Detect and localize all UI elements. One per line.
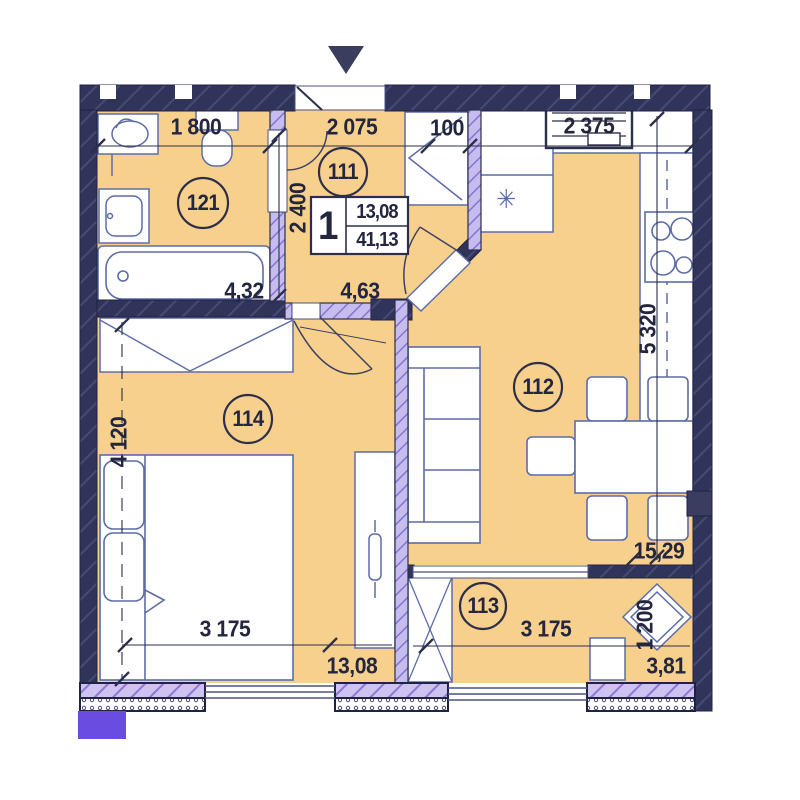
- balcony-glazing: [448, 688, 587, 700]
- chair: [527, 437, 575, 475]
- room-number-hallway: 111: [328, 161, 358, 183]
- chair: [648, 496, 688, 540]
- area-bedroom: 13,08: [327, 655, 378, 678]
- dim-bedroom-height: 4 120: [108, 417, 131, 468]
- dim-kitchen-height: 5 320: [637, 304, 660, 355]
- dim-top-kitchen: 2 375: [564, 115, 615, 138]
- wardrobe-bedroom: [100, 318, 293, 372]
- area-hallway: 4,63: [340, 280, 379, 303]
- chair: [648, 377, 688, 421]
- bedroom-window: [205, 686, 335, 698]
- unit-number: 1: [318, 206, 338, 246]
- unit-total-area: 41,13: [356, 230, 397, 250]
- dim-top-bathroom: 1 800: [171, 116, 222, 139]
- bed: [100, 455, 293, 680]
- stove: [645, 212, 695, 282]
- dim-top-gap: 100: [430, 117, 464, 140]
- chair: [587, 377, 627, 421]
- unit-living-area: 13,08: [356, 202, 397, 222]
- floor-plan-drawing: [0, 0, 800, 800]
- dim-bedroom-width: 3 175: [200, 618, 251, 641]
- balcony-stool: [590, 638, 625, 680]
- entrance-arrow-icon: [328, 46, 364, 74]
- room-number-bathroom: 121: [187, 192, 219, 214]
- sofa: [408, 347, 480, 543]
- wardrobe-balcony: [408, 577, 452, 682]
- dim-top-hallway: 2 075: [327, 116, 378, 139]
- area-bathroom: 4,32: [224, 280, 263, 303]
- washing-machine: [99, 189, 149, 243]
- balcony-rail: [80, 683, 695, 711]
- dim-hallway-height: 2 400: [287, 183, 310, 234]
- legend-color-swatch: [78, 711, 126, 739]
- dim-balcony-height: 1 200: [634, 600, 657, 651]
- entrance-door: [295, 86, 385, 110]
- vent-icon: ✳: [496, 186, 516, 212]
- area-balcony: 3,81: [646, 655, 685, 678]
- living-balcony-window: [413, 566, 588, 578]
- dim-balcony-width: 3 175: [521, 618, 572, 641]
- floor-plan: 1 800 2 075 100 2 375 2 400 5 320 4 120 …: [0, 0, 800, 800]
- chair: [587, 496, 627, 540]
- area-living: 15,29: [634, 540, 685, 563]
- tv-stand: [355, 452, 395, 648]
- room-number-balcony: 113: [467, 595, 498, 617]
- room-number-bedroom: 114: [232, 408, 263, 430]
- room-number-living: 112: [522, 376, 553, 398]
